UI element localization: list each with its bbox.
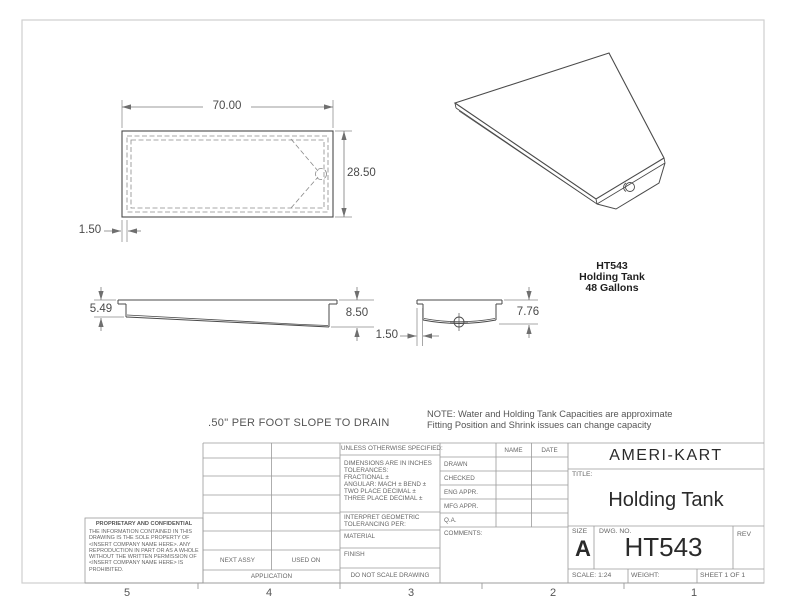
approval-row-checked: CHECKED: [444, 475, 475, 482]
drain-fitting-end: [450, 313, 468, 331]
zone-number-5: 5: [117, 587, 137, 599]
drawing-sheet: 70.00 28.50 1.50 5.49 8.50 7.76 1.50 HT5…: [0, 0, 792, 612]
capacity-note-line1: NOTE: Water and Holding Tank Capacities …: [427, 409, 672, 420]
capacity-note: NOTE: Water and Holding Tank Capacities …: [427, 409, 672, 430]
do-not-scale-label: DO NOT SCALE DRAWING: [341, 572, 439, 579]
dim-top-height: 28.50: [347, 167, 387, 179]
approval-row-drawn: DRAWN: [444, 461, 468, 468]
title-label: TITLE:: [572, 471, 592, 478]
dim-front-right-depth: 8.50: [343, 307, 371, 319]
rev-label: REV: [737, 531, 751, 538]
date-header: DATE: [532, 447, 567, 454]
tolerance-line-6: THREE PLACE DECIMAL ±: [344, 495, 422, 502]
application-label: APPLICATION: [203, 573, 340, 580]
company-name: AMERI-KART: [568, 447, 764, 465]
interpret-line2: TOLERANCING PER:: [344, 521, 406, 528]
zone-number-2: 2: [543, 587, 563, 599]
drain-fitting-iso: [624, 183, 635, 192]
size-value: A: [572, 536, 594, 562]
sheet-value: SHEET 1 OF 1: [700, 572, 745, 579]
tolerance-line-3: FRACTIONAL ±: [344, 474, 389, 481]
front-view-dimensions: [94, 287, 374, 341]
finish-label: FINISH: [344, 551, 365, 558]
proprietary-body: THE INFORMATION CONTAINED IN THIS DRAWIN…: [89, 529, 200, 573]
slope-note: .50" PER FOOT SLOPE TO DRAIN: [208, 417, 390, 429]
dim-front-left-depth: 5.49: [87, 303, 115, 315]
comments-label: COMMENTS:: [444, 530, 482, 537]
tolerance-header: UNLESS OTHERWISE SPECIFIED:: [341, 445, 439, 452]
tolerance-line-4: ANGULAR: MACH ± BEND ±: [344, 481, 426, 488]
zone-number-1: 1: [684, 587, 704, 599]
part-capacity: 48 Gallons: [539, 283, 685, 294]
scale-value: SCALE: 1:24: [572, 572, 611, 579]
interpret-line1: INTERPRET GEOMETRIC: [344, 514, 419, 521]
front-view: [118, 300, 337, 327]
approval-row-qa: Q.A.: [444, 517, 457, 524]
dim-end-flange: 1.50: [362, 329, 398, 341]
dim-end-depth: 7.76: [514, 306, 542, 318]
weight-label: WEIGHT:: [631, 572, 659, 579]
tolerance-line-2: TOLERANCES:: [344, 467, 388, 474]
used-on-label: USED ON: [272, 557, 340, 564]
part-label: HT543 Holding Tank 48 Gallons: [539, 261, 685, 294]
drawing-title: Holding Tank: [568, 489, 764, 512]
dim-top-width: 70.00: [203, 100, 251, 113]
dim-top-flange: 1.50: [76, 224, 104, 236]
proprietary-header: PROPRIETARY AND CONFIDENTIAL: [87, 521, 201, 527]
tolerance-line-1: DIMENSIONS ARE IN INCHES: [344, 460, 432, 467]
tolerance-line-5: TWO PLACE DECIMAL ±: [344, 488, 416, 495]
zone-number-4: 4: [259, 587, 279, 599]
material-label: MATERIAL: [344, 533, 375, 540]
size-label: SIZE: [572, 528, 587, 535]
isometric-view: [455, 53, 665, 209]
approval-row-eng-appr: ENG APPR.: [444, 489, 478, 496]
dwg-no-value: HT543: [594, 532, 733, 563]
end-view: [417, 300, 502, 331]
zone-number-3: 3: [401, 587, 421, 599]
capacity-note-line2: Fitting Position and Shrink issues can c…: [427, 420, 672, 431]
name-header: NAME: [496, 447, 531, 454]
top-view: [104, 100, 352, 242]
next-assy-label: NEXT ASSY: [203, 557, 272, 564]
approval-row-mfg-appr: MFG APPR.: [444, 503, 478, 510]
